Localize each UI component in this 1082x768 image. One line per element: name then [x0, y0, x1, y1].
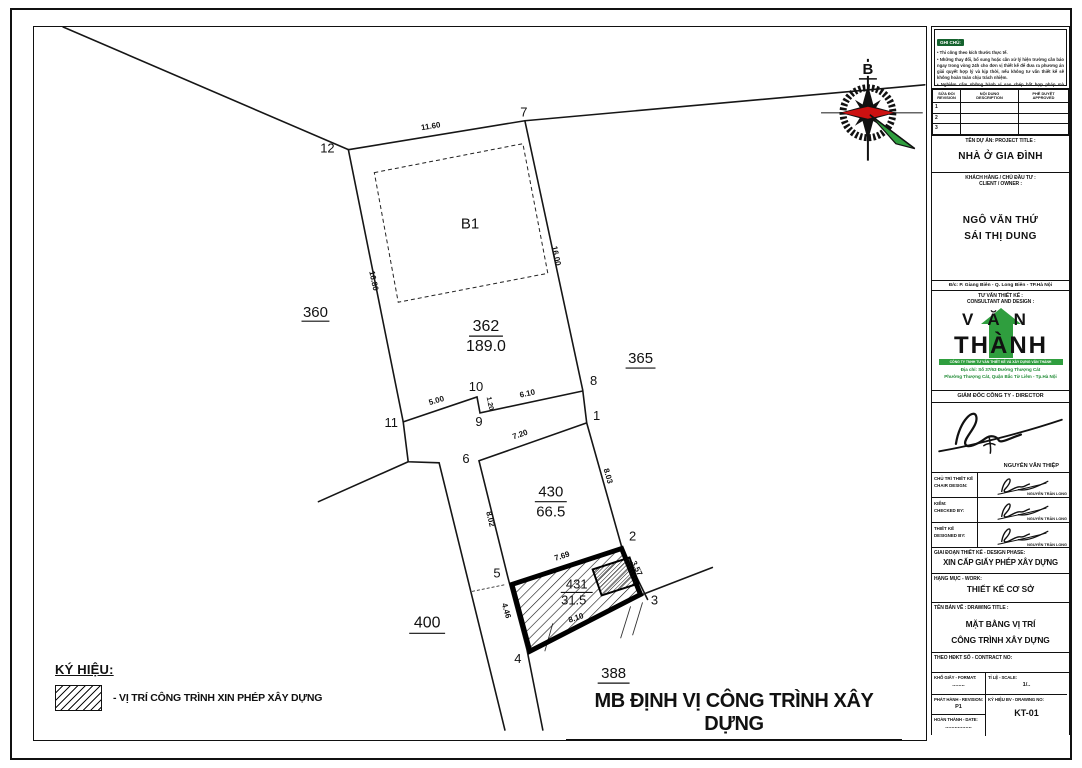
format-value: ........ [932, 682, 985, 688]
vertex-7: 7 [520, 105, 527, 120]
vertex-9: 9 [475, 414, 482, 429]
drawing-sheet: B 360 362 189.0 365 400 388 430 66.5 431… [0, 0, 1082, 768]
notes-section: GHI CHÚ: • Thi công theo kích thước thực… [932, 27, 1069, 89]
parcel-430-label: 430 [538, 484, 563, 501]
vertex-5: 5 [493, 565, 500, 580]
parcel-360-label: 360 [303, 304, 328, 321]
phase-label: GIAI ĐOẠN THIẾT KẾ - DESIGN PHASE: [932, 548, 1069, 556]
parcel-400-label: 400 [414, 614, 441, 631]
sig2-name: NGUYỄN TRẦN LONG [1027, 517, 1067, 521]
rev-row-3: 3 [933, 124, 961, 135]
drawing-no-label: KÝ HIỆU BV - DRAWING NO: [986, 695, 1067, 702]
scale-label: TỈ LỆ - SCALE: [986, 673, 1067, 680]
revision-value: P1 [932, 704, 985, 710]
vertex-1: 1 [593, 408, 600, 423]
vertex-12: 12 [320, 141, 334, 156]
owner-name-2: SÁI THỊ DUNG [932, 229, 1069, 245]
consultant-section: TƯ VẤN THIẾT KẾ : CONSULTANT AND DESIGN … [932, 291, 1069, 403]
rev-row-2: 2 [933, 113, 961, 124]
van-thanh-logo: VĂN THÀNH [943, 308, 1059, 358]
company-address-1: Địa chỉ: Số 37/63 Đường Thượng Cát [932, 367, 1069, 374]
revision-table-section: SỬA ĐỔIREVISION NỘI DUNGDESCRIPTION PHÊ … [932, 89, 1069, 136]
signature-row-designed: THIẾT KẾ DESIGNED BY: NGUYỄN TRẦN LONG [932, 523, 1069, 548]
sig1-label-vi: CHỦ TRÌ THIẾT KẾ [934, 476, 977, 483]
client-label-vi: KHÁCH HÀNG / CHỦ ĐẦU TƯ : [932, 173, 1069, 181]
director-signature-section: NGUYỄN VĂN THIỆP [932, 403, 1069, 473]
parcel-431-area: 31.5 [561, 592, 586, 607]
parcel-362-area: 189.0 [466, 338, 506, 355]
project-title-value: NHÀ Ở GIA ĐÌNH [932, 151, 1069, 162]
design-phase-section: GIAI ĐOẠN THIẾT KẾ - DESIGN PHASE: XIN C… [932, 548, 1069, 574]
dim-7-20: 7.20 [511, 428, 529, 442]
owner-name-1: NGÔ VĂN THỨ [932, 213, 1069, 229]
director-signature [932, 403, 1069, 455]
legend-item-label: - VỊ TRÍ CÔNG TRÌNH XIN PHÉP XÂY DỰNG [113, 692, 322, 704]
contract-section: THEO HĐKT SỐ - CONTRACT NO: [932, 653, 1069, 673]
drawing-title-value-2: CÔNG TRÌNH XÂY DỰNG [932, 635, 1069, 645]
dim-7-69: 7.69 [553, 549, 571, 563]
sig1-label-en: CHAIR DESIGN: [934, 483, 977, 490]
vertex-4: 4 [514, 651, 521, 666]
info-grid-section: KHỔ GIẤY - FORMAT: ........ TỈ LỆ - SCAL… [932, 673, 1069, 736]
dim-1-20: 1.20 [485, 396, 495, 411]
compass-rose: B [821, 59, 923, 161]
parcel-431-label: 431 [566, 576, 588, 591]
revision-label: PHÁT HÀNH - REVISION: [932, 695, 985, 702]
work-section: HẠNG MỤC - WORK: THIẾT KẾ CƠ SỞ [932, 574, 1069, 603]
revision-table: SỬA ĐỔIREVISION NỘI DUNGDESCRIPTION PHÊ … [932, 89, 1069, 135]
dimension-labels: 11.60 16.80 16.00 5.00 1.20 6.10 7.20 8.… [367, 120, 644, 624]
director-name: NGUYỄN VĂN THIỆP [1004, 463, 1059, 469]
vertex-8: 8 [590, 373, 597, 388]
sig2-label-vi: KIỂM: [934, 501, 977, 508]
sig1-name: NGUYỄN TRẦN LONG [1027, 492, 1067, 496]
vertex-11: 11 [385, 415, 398, 430]
notes-heading: GHI CHÚ: [937, 39, 964, 46]
site-plan-canvas: B 360 362 189.0 365 400 388 430 66.5 431… [33, 26, 927, 741]
sig2-label-en: CHECKED BY: [934, 508, 977, 515]
date-label: HOÀN THÀNH - DATE: [932, 715, 985, 722]
note-line: • Những thay đổi, bổ sung hoặc cần xử lý… [937, 57, 1064, 81]
parcel-430-area: 66.5 [536, 504, 565, 521]
phase-value: XIN CẤP GIẤY PHÉP XÂY DỰNG [932, 558, 1069, 567]
drawing-no-value: KT-01 [986, 708, 1067, 718]
dim-6-10: 6.10 [519, 387, 537, 399]
drawing-title-section: TÊN BẢN VẼ : DRAWING TITLE : MẶT BẰNG VỊ… [932, 603, 1069, 653]
vertex-2: 2 [629, 529, 636, 544]
dim-4-46: 4.46 [500, 602, 513, 620]
scale-value: 1/.. [986, 682, 1067, 688]
sig3-label-vi: THIẾT KẾ [934, 526, 977, 533]
signature-row-checked: KIỂM: CHECKED BY: NGUYỄN TRẦN LONG [932, 498, 1069, 523]
parcel-362-label: 362 [473, 318, 500, 335]
date-value: ................. [932, 724, 985, 730]
dim-16-80: 16.80 [367, 270, 380, 292]
logo-text-van: VĂN [962, 310, 1040, 329]
legend-heading: KÝ HIỆU: [55, 662, 322, 677]
client-label-en: CLIENT / OWNER : [932, 181, 1069, 187]
dim-5-00: 5.00 [428, 394, 446, 407]
compass-north-label: B [863, 61, 874, 78]
company-name-band: CÔNG TY TNHH TƯ VẤN THIẾT KẾ VÀ XÂY DỰNG… [939, 359, 1063, 365]
sig3-label-en: DESIGNED BY: [934, 533, 977, 540]
legend-hatch-swatch [55, 685, 102, 711]
work-value: THIẾT KẾ CƠ SỞ [932, 585, 1069, 594]
parcel-boundaries [63, 27, 925, 730]
client-address: Đ/c: P. Giang Biên - Q. Long Biên - TP.H… [932, 280, 1069, 290]
parcel-365-label: 365 [628, 350, 653, 367]
client-section: KHÁCH HÀNG / CHỦ ĐẦU TƯ : CLIENT / OWNER… [932, 173, 1069, 291]
parcel-388-label: 388 [601, 665, 626, 682]
director-label: GIÁM ĐỐC CÔNG TY - DIRECTOR [932, 390, 1069, 402]
dim-11-60: 11.60 [420, 120, 441, 132]
building-b1-label: B1 [461, 215, 479, 232]
company-address-2: Phường Thượng Cát, Quận Bắc Từ Liêm - Tp… [932, 374, 1069, 381]
note-line: • Nghiêm cấm những hành vi sao chép bất … [937, 82, 1064, 89]
format-label: KHỔ GIẤY - FORMAT: [932, 673, 985, 680]
vertex-3: 3 [651, 592, 658, 607]
signature-rows: CHỦ TRÌ THIẾT KẾ CHAIR DESIGN: NGUYỄN TR… [932, 473, 1069, 548]
vertex-6: 6 [462, 451, 469, 466]
drawing-title-value-1: MẶT BẰNG VỊ TRÍ [932, 619, 1069, 629]
drawing-title-label: TÊN BẢN VẼ : DRAWING TITLE : [932, 603, 1069, 611]
logo-text-thanh: THÀNH [954, 331, 1048, 358]
dim-16-00: 16.00 [550, 245, 563, 267]
sig3-name: NGUYỄN TRẦN LONG [1027, 543, 1067, 547]
note-line: • Thi công theo kích thước thực tế. [937, 50, 1064, 56]
vertex-10: 10 [469, 379, 483, 394]
project-title-label: TÊN DỰ ÁN: PROJECT TITLE : [932, 136, 1069, 144]
drawing-main-title: MB ĐỊNH VỊ CÔNG TRÌNH XÂY DỰNG [566, 690, 902, 741]
dim-8-02: 8.02 [484, 510, 497, 528]
title-block: GHI CHÚ: • Thi công theo kích thước thực… [931, 26, 1070, 735]
work-label: HẠNG MỤC - WORK: [932, 574, 1069, 582]
consultant-label-vi: TƯ VẤN THIẾT KẾ : [932, 291, 1069, 299]
project-section: TÊN DỰ ÁN: PROJECT TITLE : NHÀ Ở GIA ĐÌN… [932, 136, 1069, 173]
signature-row-chair: CHỦ TRÌ THIẾT KẾ CHAIR DESIGN: NGUYỄN TR… [932, 473, 1069, 498]
legend: KÝ HIỆU: - VỊ TRÍ CÔNG TRÌNH XIN PHÉP XÂ… [55, 662, 322, 711]
rev-row-1: 1 [933, 103, 961, 114]
consultant-label-en: CONSULTANT AND DESIGN : [932, 299, 1069, 305]
contract-label: THEO HĐKT SỐ - CONTRACT NO: [932, 653, 1069, 661]
